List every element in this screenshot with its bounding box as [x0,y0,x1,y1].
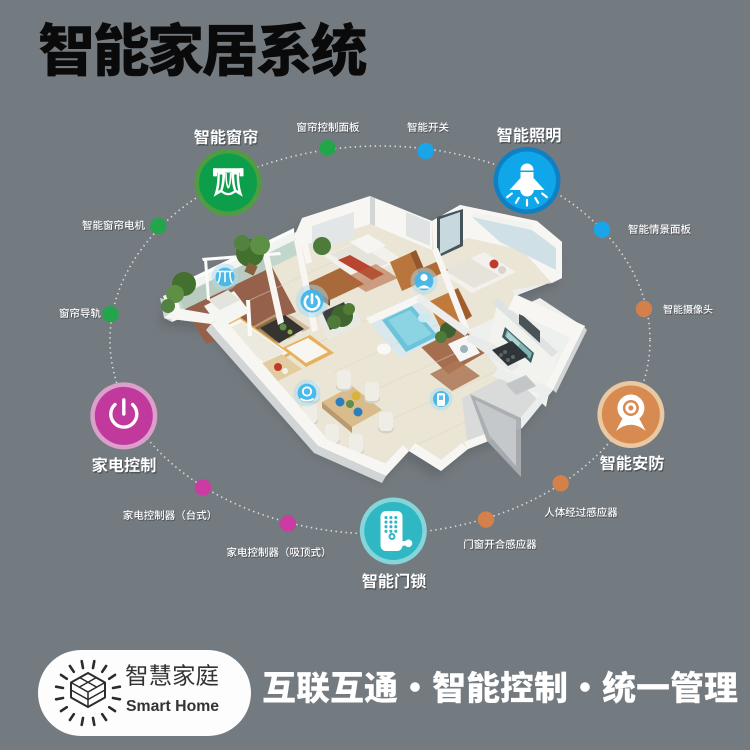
svg-text:Smart Home: Smart Home [126,698,219,715]
